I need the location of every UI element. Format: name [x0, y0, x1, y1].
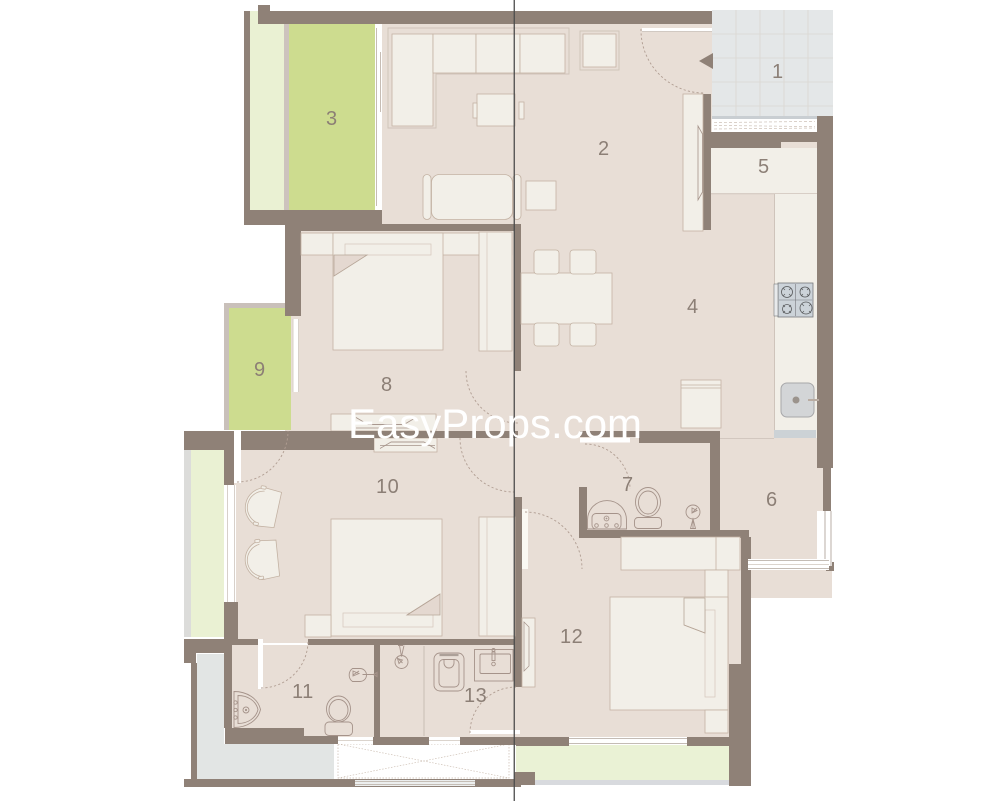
svg-text:2: 2: [598, 138, 610, 160]
svg-text:1: 1: [772, 61, 784, 83]
svg-text:5: 5: [758, 156, 770, 178]
svg-text:13: 13: [464, 685, 487, 707]
svg-text:9: 9: [254, 359, 266, 381]
svg-text:11: 11: [292, 681, 314, 703]
svg-text:7: 7: [622, 474, 634, 496]
svg-text:8: 8: [381, 374, 393, 396]
svg-text:6: 6: [766, 489, 778, 511]
svg-text:3: 3: [326, 108, 338, 130]
svg-text:4: 4: [687, 296, 699, 318]
svg-text:12: 12: [560, 626, 583, 648]
svg-text:10: 10: [376, 476, 399, 498]
svg-text:EasyProps.com: EasyProps.com: [348, 400, 642, 447]
